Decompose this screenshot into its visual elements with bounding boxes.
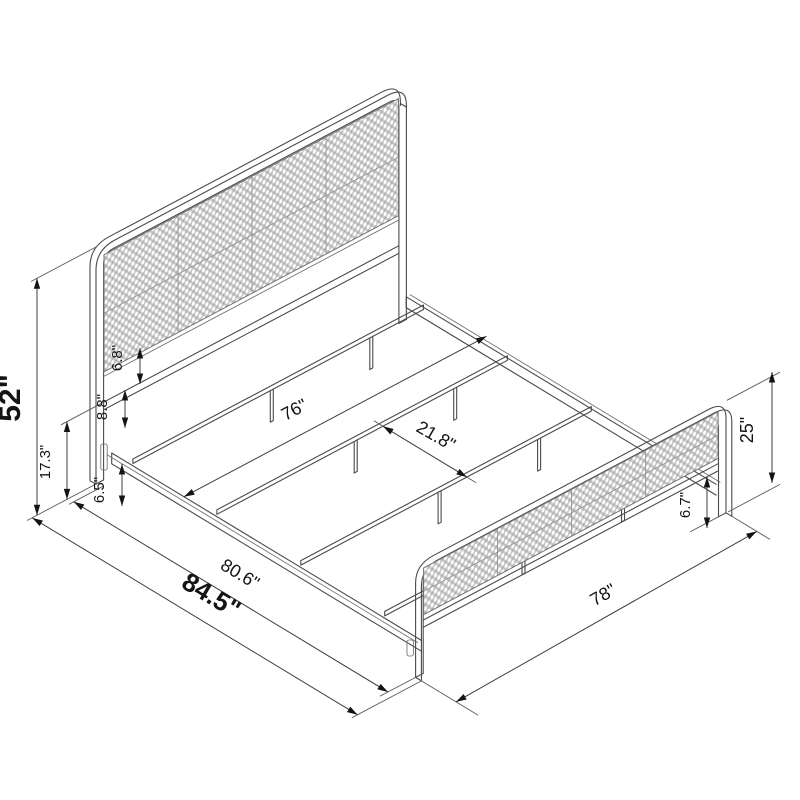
side-rail-near-top-face — [108, 455, 418, 642]
dim-label-overall-width: 78" — [587, 580, 620, 610]
dim-label-crossbar-to-rail: 8.8" — [94, 394, 111, 420]
headboard — [90, 89, 406, 484]
footboard — [407, 406, 732, 681]
dim-label-headboard-frame-height: 17.3" — [37, 445, 54, 480]
footboard-rail-bracket — [407, 640, 413, 656]
dim-line-76 — [184, 336, 487, 496]
footboard-panel-seams — [424, 435, 718, 591]
dim-label-headboard-height: 52" — [0, 374, 27, 422]
bed-dimension-diagram: 52" 17.3" 6.8" 8.8" 6.5" 76" 21.8" 25" 6… — [0, 0, 800, 800]
dim-label-footboard-height: 25" — [737, 417, 757, 443]
isometric-bed-drawing: 52" 17.3" 6.8" 8.8" 6.5" 76" 21.8" 25" 6… — [0, 0, 800, 800]
dim-label-panel-to-crossbar: 6.8" — [109, 345, 126, 371]
dim-line-84-5 — [32, 518, 357, 715]
slat-legs — [270, 336, 624, 574]
side-rail-near — [112, 453, 422, 651]
footboard-leg-bottoms — [416, 513, 726, 678]
dim-label-inner-width: 76" — [278, 395, 311, 425]
slat-2 — [217, 356, 508, 515]
dim-label-rail-height: 6.5" — [91, 477, 108, 503]
dim-label-footboard-panel-height: 6.7" — [677, 492, 694, 518]
